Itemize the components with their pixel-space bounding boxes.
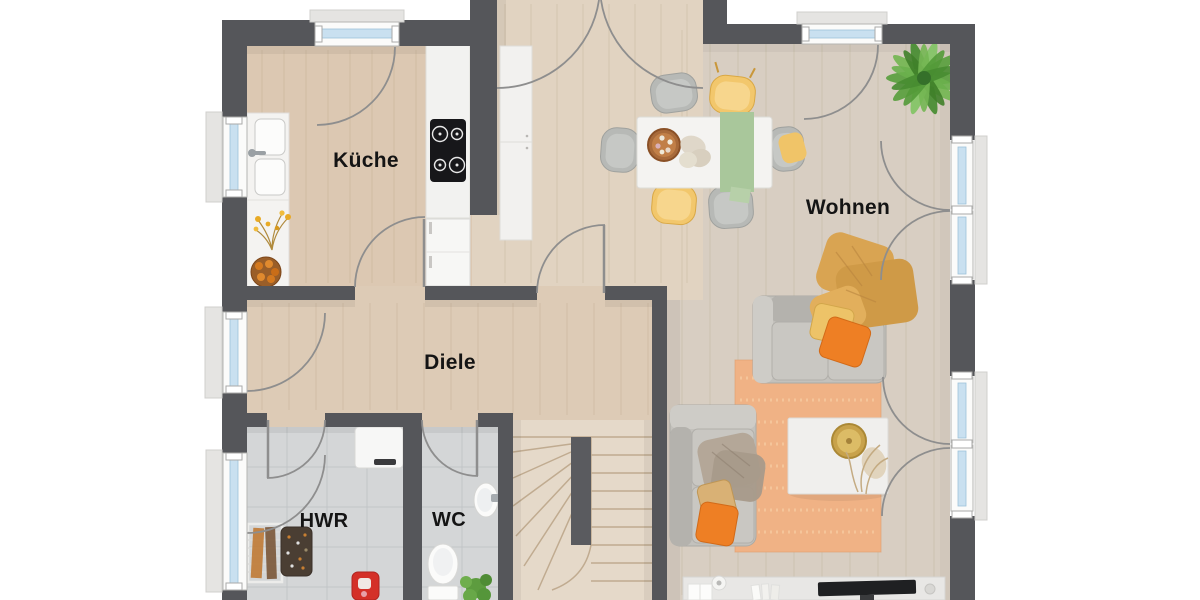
room-label-kueche: Küche: [333, 149, 399, 172]
shadow: [247, 300, 355, 307]
shadow: [425, 300, 537, 307]
window-glass: [230, 122, 238, 192]
toilet-tank: [428, 586, 458, 600]
centerpiece-bowl: [648, 129, 680, 161]
wall-stairwell-right: [652, 300, 667, 600]
door-glass: [958, 217, 966, 274]
book: [761, 584, 769, 600]
wall-left: [222, 197, 247, 312]
window-utility-left: [206, 450, 247, 592]
shadow: [940, 24, 950, 600]
hanging-clothes: [265, 527, 277, 579]
window-living-top: [797, 12, 887, 44]
cooktop: [430, 119, 466, 182]
wall-right: [950, 24, 975, 140]
book: [751, 585, 761, 600]
floor-plan-image: Küche Wohnen Diele HWR WC: [0, 0, 1200, 600]
door-glass: [230, 317, 238, 388]
room-label-wc: WC: [432, 509, 466, 531]
wall-top-kitchen: [222, 20, 317, 46]
wall-utility-top: [325, 413, 403, 427]
wall-wc-top: [478, 413, 513, 427]
water-heater: [355, 427, 403, 468]
tv-sideboard: [683, 576, 945, 600]
dining-chair-gray: [600, 127, 641, 174]
tv-stand: [860, 595, 874, 600]
door-glass: [958, 383, 966, 438]
glazed-side-door-hall: [205, 307, 247, 398]
wall-utility-wc-divider: [403, 413, 422, 600]
faucet-base: [248, 149, 256, 157]
french-door-lower: [951, 372, 987, 520]
door-glass: [958, 451, 966, 506]
runner-fold: [729, 187, 751, 204]
shadow: [644, 420, 652, 600]
window-glass: [320, 29, 394, 38]
laundry-basket: [281, 527, 312, 576]
sink-basin: [255, 159, 285, 195]
staircase: [513, 420, 652, 600]
shadow: [422, 427, 498, 433]
pillow-orange: [695, 501, 739, 547]
room-label-wohnen: Wohnen: [806, 196, 890, 219]
dining-chair-yellow: [650, 182, 697, 226]
fruit-bowl: [251, 257, 281, 287]
coffee-table: [788, 418, 890, 501]
wall-right: [950, 280, 975, 376]
wall-right: [950, 516, 975, 600]
wall-hall-living: [605, 286, 667, 300]
toilet: [428, 544, 458, 600]
room-label-diele: Diele: [424, 351, 476, 374]
wall-kitchen-hall: [425, 286, 537, 300]
wall-wc-right: [498, 413, 513, 600]
wall-vestibule-left: [470, 0, 497, 215]
window-kitchen-left: [206, 112, 247, 202]
wall-utility-top: [247, 413, 267, 427]
window-glass: [230, 459, 238, 584]
window-glass: [807, 30, 877, 38]
wall-top-kitchen: [397, 20, 472, 46]
decor-item: [925, 584, 935, 594]
floor-plan-page: Küche Wohnen Diele HWR WC: [0, 0, 1200, 600]
fridge: [426, 219, 470, 286]
french-door-upper: [951, 136, 987, 284]
door-glass: [958, 147, 966, 204]
wall-left: [222, 590, 247, 600]
window-kitchen-top: [310, 10, 404, 46]
sink-basin: [255, 119, 285, 155]
room-label-hwr: HWR: [300, 510, 349, 532]
wall-kitchen-hall: [247, 286, 355, 300]
red-toy-basket: [352, 572, 379, 600]
wall-top-living: [703, 24, 802, 44]
hall-closet: [500, 46, 532, 240]
wall-left: [222, 393, 247, 453]
book: [770, 585, 779, 600]
stair-newel-post: [571, 437, 591, 545]
tv-flatscreen: [818, 580, 916, 597]
table-runner-green: [720, 112, 754, 192]
shadow: [513, 420, 521, 600]
